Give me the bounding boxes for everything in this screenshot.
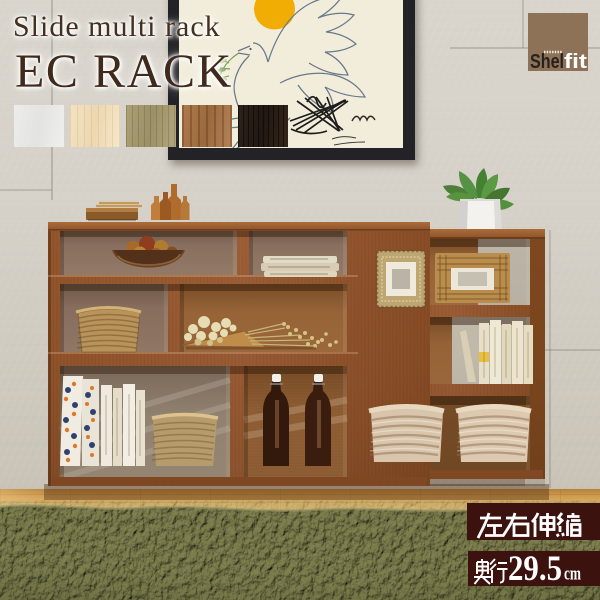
svg-text:Shel: Shel [530,51,564,71]
svg-text:29.5: 29.5 [508,551,562,586]
svg-text:fit: fit [564,51,587,71]
svg-text:cm: cm [564,564,581,585]
